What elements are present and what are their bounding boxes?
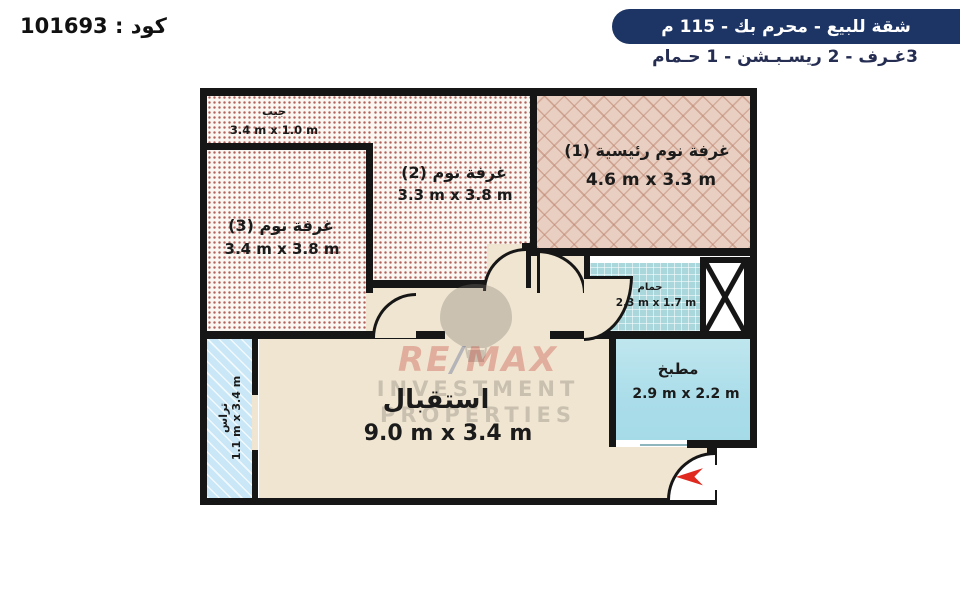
bedroom3-dims: 3.4 m x 3.8 m — [225, 240, 340, 258]
watermark-brand-re: RE — [398, 340, 451, 380]
wall-bedroom3-right — [366, 143, 373, 293]
terrace-door-opening — [252, 390, 258, 450]
kitchen-dims: 2.9 m x 2.2 m — [632, 386, 739, 402]
wall-terrace-right-upper — [252, 338, 258, 395]
title-pill: شقة للبيع - محرم بك - 115 م — [612, 9, 960, 44]
wall-bedroom2-right — [530, 95, 537, 250]
kitchen-label: مطبخ — [658, 360, 699, 378]
wall-outer-left — [200, 88, 207, 505]
floorplan-flyer: كود : 101693 شقة للبيع - محرم بك - 115 م… — [0, 0, 960, 600]
wall-kitchen-bottom — [687, 440, 757, 448]
terrace-dims: 1.1 m x 3.4 m — [230, 376, 243, 460]
bathroom-dims: 2.3 m x 1.7 m — [616, 297, 696, 309]
terrace-label-block: تراس 1.1 m x 3.4 m — [217, 376, 243, 460]
pocket-dims: 3.4 m x 1.0 m — [230, 123, 318, 137]
bedroom2-label: غرفة نوم (2) — [401, 163, 507, 182]
wall-outer-right — [750, 88, 757, 447]
title-text: شقة للبيع - محرم بك - 115 م — [661, 17, 911, 37]
bedroom3-door-opening — [366, 293, 373, 331]
wall-outer-top — [200, 88, 757, 96]
master-bedroom-dims: 4.6 m x 3.3 m — [586, 170, 716, 190]
wall-pocket-bottom — [207, 143, 372, 150]
shaft-box — [700, 257, 750, 337]
pocket-label: جيب — [262, 105, 286, 118]
watermark-brand-slash: / — [451, 340, 465, 380]
bathroom-label: حمام — [638, 282, 663, 293]
shaft-x-icon — [706, 263, 744, 331]
master-bedroom-label: غرفة نوم رئيسية (1) — [564, 141, 730, 160]
bedroom2-dims: 3.3 m x 3.8 m — [398, 186, 513, 204]
wall-terrace-right-lower — [252, 450, 258, 498]
reception-dims: 9.0 m x 3.4 m — [364, 421, 533, 446]
wall-kitchen-left — [609, 339, 616, 447]
bedroom3-label: غرفة نوم (3) — [228, 216, 334, 235]
kitchen-door-sill — [640, 444, 687, 446]
reception-label: استقبال — [383, 385, 490, 415]
subtitle: 3غـرف - 2 ريسـبـشن - 1 حـمام — [652, 47, 918, 67]
watermark-brand: RE/MAX — [398, 340, 558, 380]
code-label: كود : 101693 — [20, 14, 167, 38]
wall-outer-bottom — [200, 498, 717, 505]
watermark-brand-max: MAX — [466, 340, 558, 380]
terrace-label: تراس — [217, 376, 230, 460]
